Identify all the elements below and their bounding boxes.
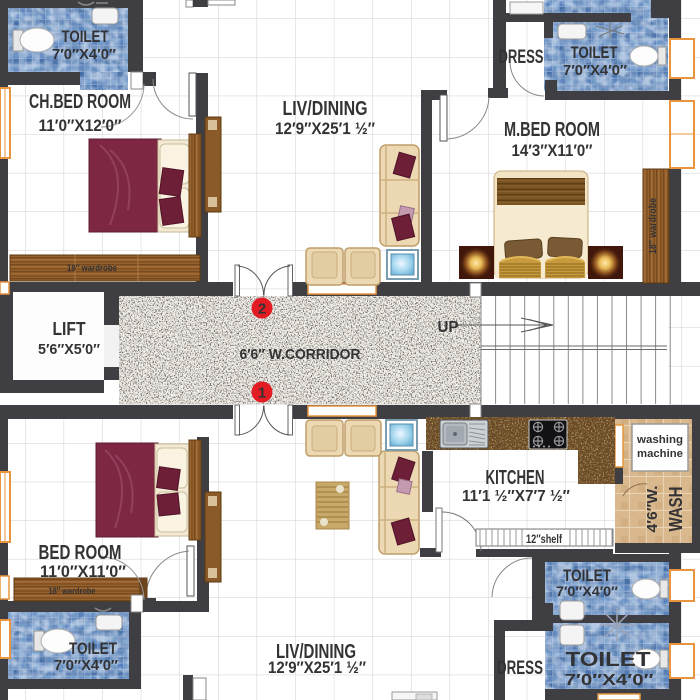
- svg-text:7′0″X4′0″: 7′0″X4′0″: [52, 46, 116, 63]
- svg-text:TOILET: TOILET: [69, 639, 117, 658]
- svg-text:M.BED ROOM: M.BED ROOM: [504, 119, 600, 141]
- svg-text:11′0″X11′0″: 11′0″X11′0″: [40, 562, 126, 581]
- svg-text:TOILET: TOILET: [62, 27, 109, 46]
- svg-text:7′0″X4′0″: 7′0″X4′0″: [556, 583, 618, 599]
- svg-text:12″shelf: 12″shelf: [526, 532, 563, 546]
- svg-text:11′0″X12′0″: 11′0″X12′0″: [39, 116, 122, 135]
- svg-text:18″ wardrobe: 18″ wardrobe: [67, 263, 117, 274]
- svg-text:11′1 ½″X7′7 ½″: 11′1 ½″X7′7 ½″: [462, 488, 570, 505]
- svg-text:12′9″X25′1 ½″: 12′9″X25′1 ½″: [268, 658, 366, 677]
- svg-text:7′0″X4′0″: 7′0″X4′0″: [54, 657, 118, 674]
- svg-text:4′6″W.: 4′6″W.: [644, 486, 661, 533]
- svg-text:washing: washing: [636, 434, 683, 446]
- svg-text:TOILET: TOILET: [571, 43, 618, 62]
- svg-text:7′0″X4′0″: 7′0″X4′0″: [563, 62, 627, 79]
- svg-text:12′9″X25′1 ½″: 12′9″X25′1 ½″: [275, 119, 375, 138]
- svg-text:5′6″X5′0″: 5′6″X5′0″: [38, 341, 100, 358]
- svg-text:CH.BED ROOM: CH.BED ROOM: [29, 91, 131, 113]
- svg-text:6′6″ W.CORRIDOR: 6′6″ W.CORRIDOR: [240, 346, 361, 363]
- svg-text:18″ wardrobe: 18″ wardrobe: [648, 198, 659, 254]
- svg-text:KITCHEN: KITCHEN: [486, 467, 545, 489]
- svg-text:14′3″X11′0″: 14′3″X11′0″: [512, 141, 593, 160]
- svg-text:DRESS: DRESS: [499, 47, 544, 68]
- svg-text:LIV/DINING: LIV/DINING: [283, 98, 368, 120]
- svg-text:DRESS: DRESS: [497, 658, 543, 679]
- svg-text:UP: UP: [438, 319, 459, 336]
- svg-text:BED ROOM: BED ROOM: [39, 542, 122, 564]
- svg-text:WASH: WASH: [666, 487, 686, 532]
- svg-text:2: 2: [258, 301, 266, 318]
- svg-text:LIFT: LIFT: [53, 319, 86, 339]
- svg-text:18″ wardrobe: 18″ wardrobe: [49, 586, 96, 597]
- svg-text:1: 1: [258, 385, 266, 402]
- svg-text:machine: machine: [637, 448, 683, 460]
- svg-text:TOILET: TOILET: [566, 649, 651, 671]
- svg-text:7′0″X4′0″: 7′0″X4′0″: [565, 672, 654, 689]
